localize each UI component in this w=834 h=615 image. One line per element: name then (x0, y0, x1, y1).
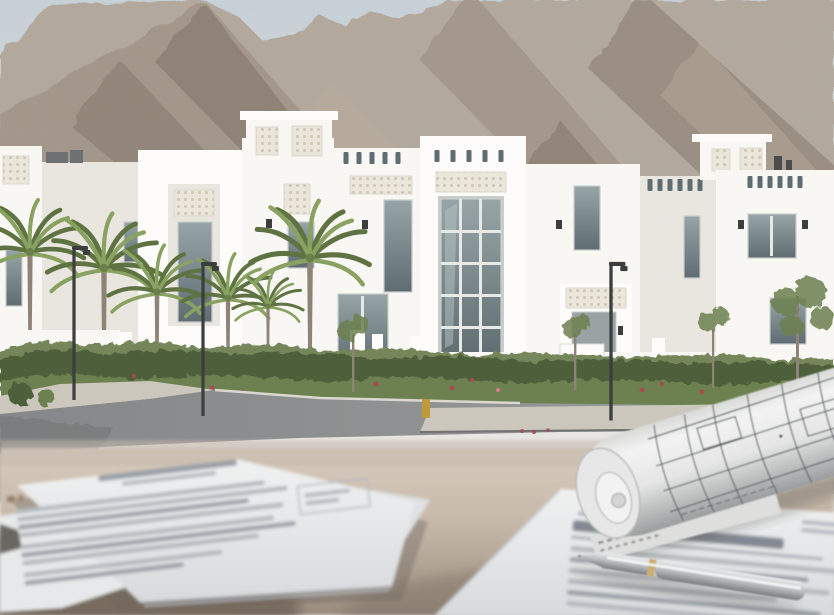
tower-cap (692, 134, 772, 142)
flower (640, 388, 645, 393)
roof-chimney (786, 160, 792, 170)
window-mullion (441, 262, 501, 265)
yellow-bollard (422, 399, 430, 418)
glass-curtain-wall (438, 196, 504, 362)
tree-trunk (574, 334, 576, 390)
window-mullion (459, 199, 462, 359)
flower (546, 428, 550, 432)
slot-window (483, 150, 488, 162)
tree-trunk (712, 330, 714, 388)
lattice-band (436, 172, 506, 192)
roof-tower-left (240, 111, 338, 166)
flower (532, 430, 536, 434)
logo-mark (7, 496, 16, 503)
doorbell-panel (618, 326, 623, 335)
tree-canopy (794, 276, 826, 308)
flower (700, 390, 705, 395)
slot-window (648, 179, 653, 191)
flower (660, 382, 664, 386)
slot-window (768, 176, 773, 188)
shrub (8, 382, 32, 406)
flower (520, 429, 524, 433)
wall-lamp (362, 220, 368, 229)
window-mullion (770, 216, 773, 256)
wall-lamp (738, 220, 744, 229)
slot-window (698, 179, 703, 191)
slot-window (383, 152, 388, 164)
lattice-band (566, 288, 626, 308)
flower (132, 374, 136, 378)
slot-window (668, 179, 673, 191)
tall-window (384, 200, 412, 292)
slot-window (435, 150, 440, 162)
slot-window (396, 152, 401, 164)
slot-window (370, 152, 375, 164)
flower (450, 386, 455, 391)
tower-cap (240, 111, 338, 120)
lattice-vent (712, 149, 730, 171)
lattice-panel (3, 156, 29, 184)
slot-window (344, 152, 349, 164)
slot-window (778, 176, 783, 188)
flower (496, 388, 500, 392)
lattice-band (350, 176, 412, 194)
scene-canvas (0, 0, 834, 615)
slot-window (451, 150, 456, 162)
window-mullion (441, 294, 501, 297)
window-mullion (479, 199, 482, 359)
shrub (37, 389, 55, 407)
photo-real-estate-scene (0, 0, 834, 615)
roof-chimney (774, 156, 782, 170)
lattice-panel (174, 190, 214, 216)
tree-canopy (711, 307, 729, 325)
wall-lamp (802, 220, 808, 229)
window (574, 186, 600, 250)
lattice-panel (284, 184, 310, 214)
slot-window (467, 150, 472, 162)
tree-canopy (574, 314, 590, 330)
slot-window (357, 152, 362, 164)
slot-window (788, 176, 793, 188)
slot-window (798, 176, 803, 188)
lattice-vent (740, 148, 762, 171)
tree-trunk (352, 334, 354, 392)
rooftop-ac-unit (70, 150, 83, 163)
flower (373, 381, 378, 386)
villa-wall (640, 176, 716, 370)
lattice-vent (292, 126, 322, 156)
logo-mark (17, 494, 24, 501)
flower (470, 378, 474, 382)
slot-window (499, 150, 504, 162)
window-mullion (441, 326, 501, 329)
wall-lamp (556, 220, 562, 229)
slot-window (688, 179, 693, 191)
rooftop-ac-unit (46, 152, 68, 163)
tree-canopy (781, 315, 803, 337)
slot-window (658, 179, 663, 191)
window-mullion (441, 230, 501, 233)
slot-window (748, 176, 753, 188)
wall-lamp (266, 219, 272, 228)
slot-window (678, 179, 683, 191)
tall-window (684, 216, 700, 278)
tree-canopy (810, 306, 834, 330)
lattice-vent (256, 127, 278, 155)
tree-canopy (351, 315, 369, 333)
slot-window (758, 176, 763, 188)
